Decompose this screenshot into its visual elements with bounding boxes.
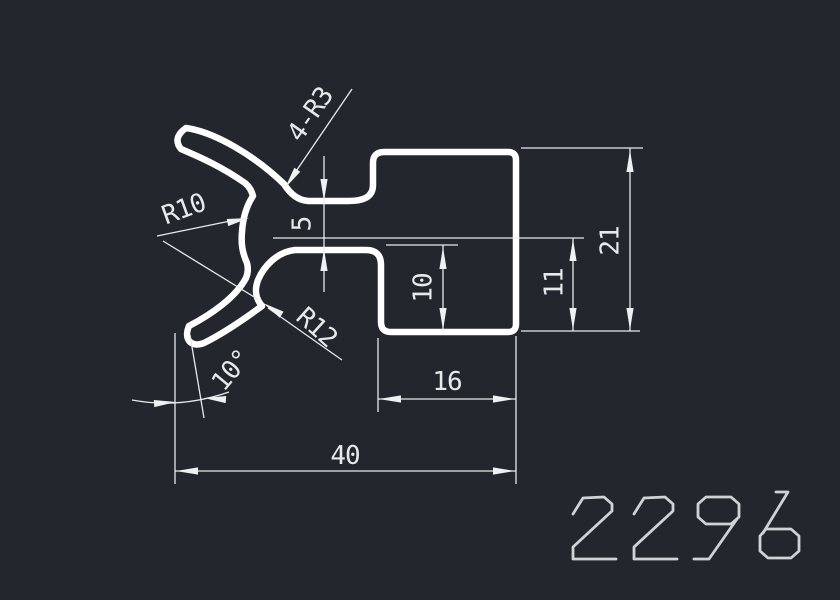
arrow-40-right — [493, 467, 515, 474]
arrow-16-right — [493, 395, 515, 402]
dim-text-total-width: 40 — [330, 441, 359, 471]
arrow-10-top — [439, 247, 446, 269]
dimension-arrowheads — [154, 150, 634, 475]
arrow-r12 — [261, 300, 283, 318]
arrow-10-bottom — [439, 308, 446, 330]
profile-outline — [177, 128, 516, 344]
dim-text-right-step-height: 11 — [540, 268, 570, 297]
glyph-digit-2b — [634, 497, 677, 559]
part-number-glyphs — [573, 492, 799, 559]
arrow-40-left — [176, 467, 198, 474]
dim-text-total-height: 21 — [596, 226, 626, 255]
dim-text-step-depth: 10 — [409, 273, 439, 302]
arrow-11-top — [569, 239, 576, 261]
glyph-digit-9-loop — [698, 497, 739, 524]
arrow-16-left — [379, 395, 401, 402]
arrow-5-top — [320, 179, 327, 201]
dim-text-neck-thickness: 5 — [288, 217, 318, 232]
dim-text-block-width: 16 — [432, 367, 461, 397]
cad-canvas: 5 10 11 21 16 40 10° R10 R12 4-R3 — [0, 0, 840, 600]
arrow-21-bottom — [626, 308, 633, 330]
arrow-11-bottom — [569, 308, 576, 330]
dim-text-fillet-note: 4-R3 — [281, 82, 339, 147]
dim-text-lip-angle: 10° — [206, 344, 257, 397]
profile-path — [177, 128, 516, 344]
glyph-digit-6-tail — [763, 492, 788, 533]
dim-text-outer-radius: R12 — [290, 302, 343, 354]
dim-text-inner-radius: R10 — [158, 188, 210, 231]
cad-drawing-stage[interactable]: 2296 — [0, 0, 840, 600]
glyph-digit-2a — [573, 497, 616, 559]
arrow-21-top — [626, 150, 633, 172]
glyph-digit-6-loop — [760, 529, 799, 558]
